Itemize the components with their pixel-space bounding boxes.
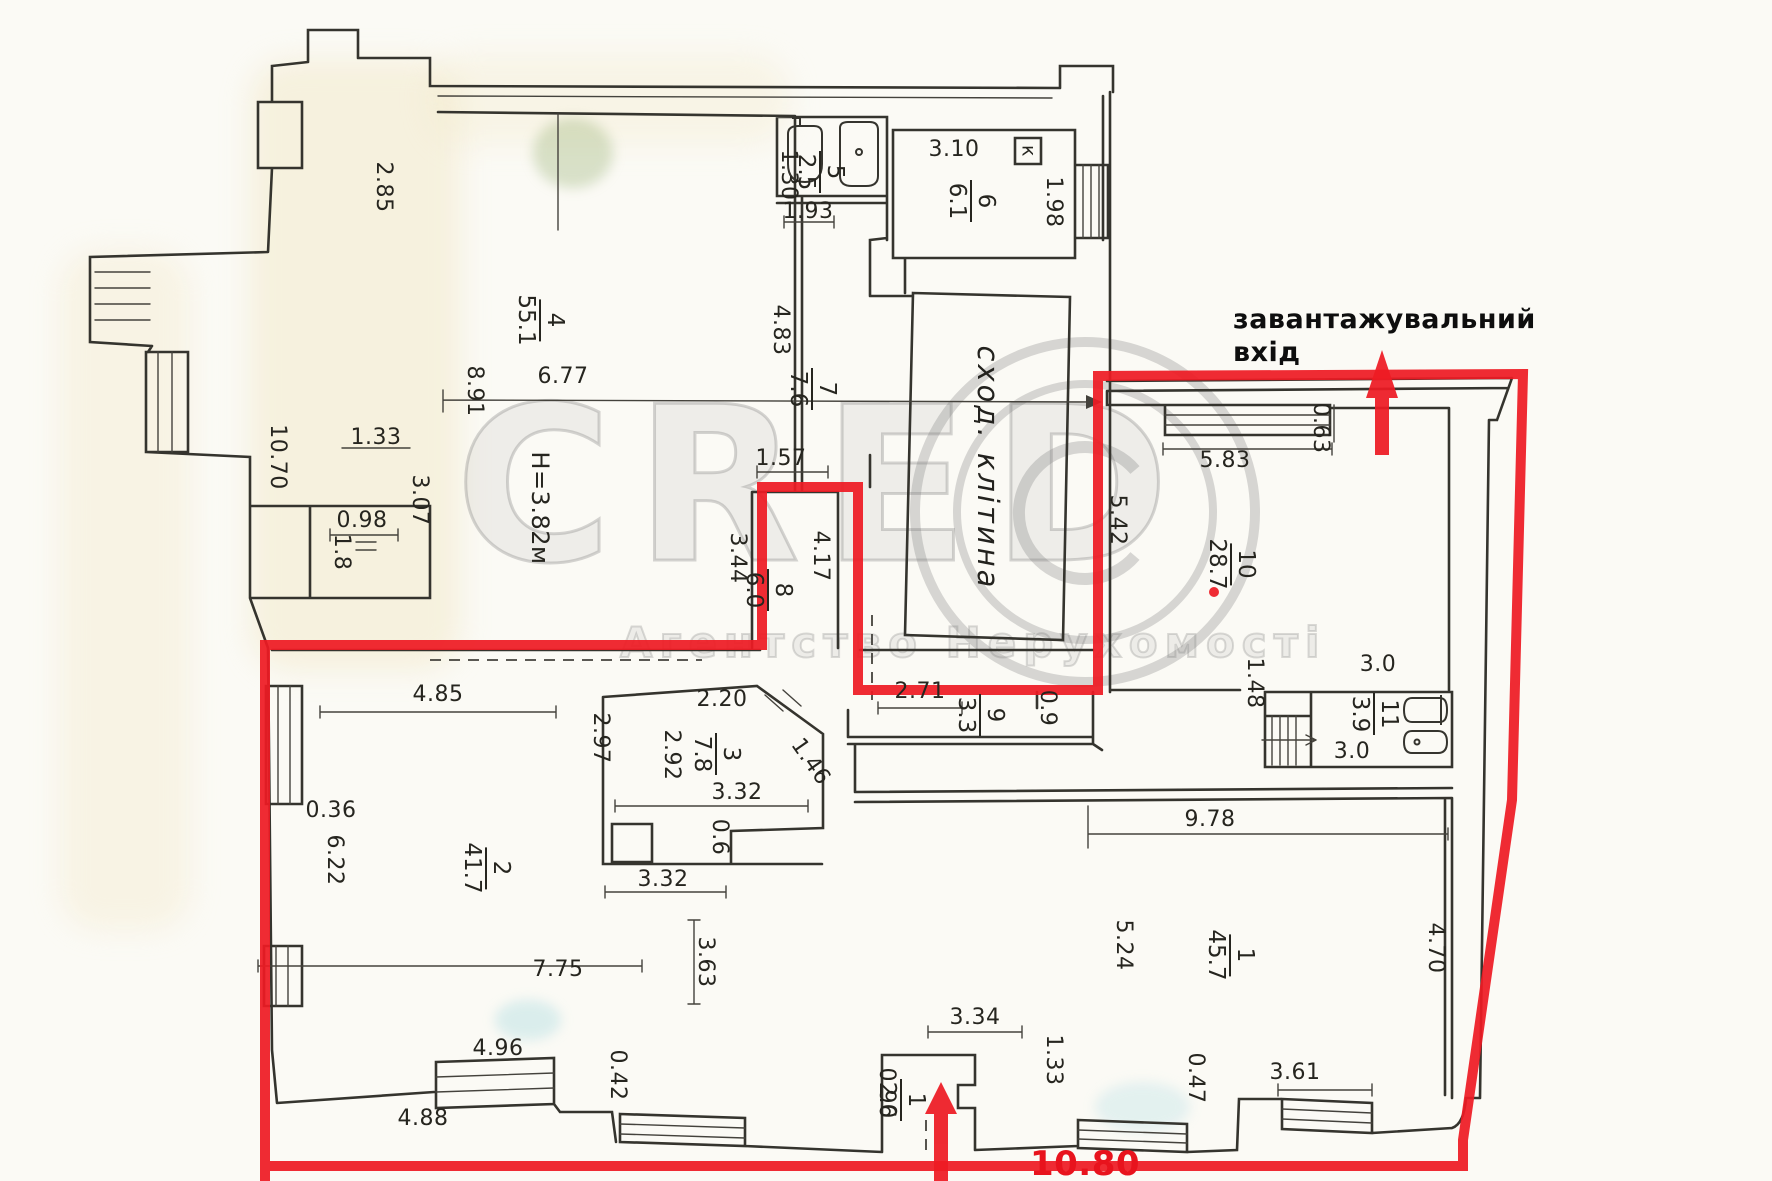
dimension-label: 4.83 [769,305,791,356]
dimension-label: 1.48 [1243,658,1265,709]
main-entrance-arrow-icon [934,1112,948,1181]
dimension-label: 3.34 [950,1007,1001,1029]
dimension-label: 2.85 [372,162,394,213]
loading-entrance-note: завантажувальний вхід [1233,303,1536,369]
dimension-label: 3.32 [712,782,763,804]
dimension-label: 1.93 [783,201,834,223]
dimension-label: 6.77 [538,366,589,388]
dimension-label: 0.42 [606,1050,628,1101]
loading-entrance-line1: завантажувальний [1233,303,1536,336]
room-label: 455.1 [514,294,566,345]
red-dimension-label: 10.80 [1030,1147,1140,1181]
room-label: 241.7 [460,842,512,893]
dimension-label: Н=3.82м [528,451,552,564]
room-label: 37.8 [690,733,742,775]
dimension-label: 2.97 [589,713,611,764]
dimension-label: 4.85 [413,684,464,706]
dimension-label: 2.71 [895,681,946,703]
dimension-label: 0.47 [1184,1053,1206,1104]
room-label: 1028.7 [1205,538,1257,589]
room-label: 52.5 [794,151,846,193]
dimension-label: 3.61 [1270,1062,1321,1084]
dimension-label: 0.36 [306,800,357,822]
dimension-label: 0.98 [337,510,388,532]
loading-entrance-arrow-icon [1375,394,1389,455]
room-label: 12.0 [875,1079,927,1121]
dimension-label: 1.33 [1042,1035,1064,1086]
dimension-label: к [1019,145,1038,157]
loading-entrance-line2: вхід [1233,336,1536,369]
dimension-label: 5.24 [1112,920,1134,971]
floor-plan-canvas: CRED Агентство Нерухомості [0,0,1772,1181]
dimension-label: 5.83 [1200,450,1251,472]
dimension-label: 4.88 [398,1108,449,1130]
dimension-label: 1.33 [351,427,402,449]
dimension-label: 4.70 [1424,923,1446,974]
main-entrance-arrow-icon [925,1082,957,1114]
dimension-label: 4.17 [809,531,831,582]
dimension-label: 3.07 [408,475,430,526]
room-label: 113.9 [1348,693,1400,735]
room-label: 93.3 [954,694,1006,736]
dimension-label: 0.63 [1309,403,1331,454]
dimension-label: 5.42 [1106,495,1128,546]
dimension-label: 4.96 [473,1038,524,1060]
dimension-label: 0.9 [1036,690,1058,727]
dimension-label: 6.22 [323,835,345,886]
room-label: 86.0 [742,569,794,611]
dimension-label: 3.0 [1360,654,1397,676]
dimension-label: 1.57 [756,448,807,470]
dimension-label: 9.78 [1185,809,1236,831]
dimension-label: 3.0 [1334,741,1371,763]
dimension-label: 1.98 [1042,177,1064,228]
dimension-label: 8.91 [463,366,485,417]
dimension-label: 0.6 [708,819,730,856]
dimension-label: 3.10 [929,139,980,161]
dimension-label: 1.8 [330,534,352,571]
room-label: 145.7 [1204,929,1256,980]
dimension-label: 3.63 [694,937,716,988]
dimension-label: 2.92 [660,730,682,781]
room-label: 66.1 [945,180,997,222]
room-label: 77.6 [786,368,838,410]
dimension-label: 2.20 [697,689,748,711]
dimension-label: 7.75 [533,959,584,981]
dimension-label: 3.32 [638,869,689,891]
red-boundary-overlay [0,0,1772,1181]
dimension-label: 10.70 [266,424,288,489]
stairwell-label: сход. клітина [971,346,1005,591]
